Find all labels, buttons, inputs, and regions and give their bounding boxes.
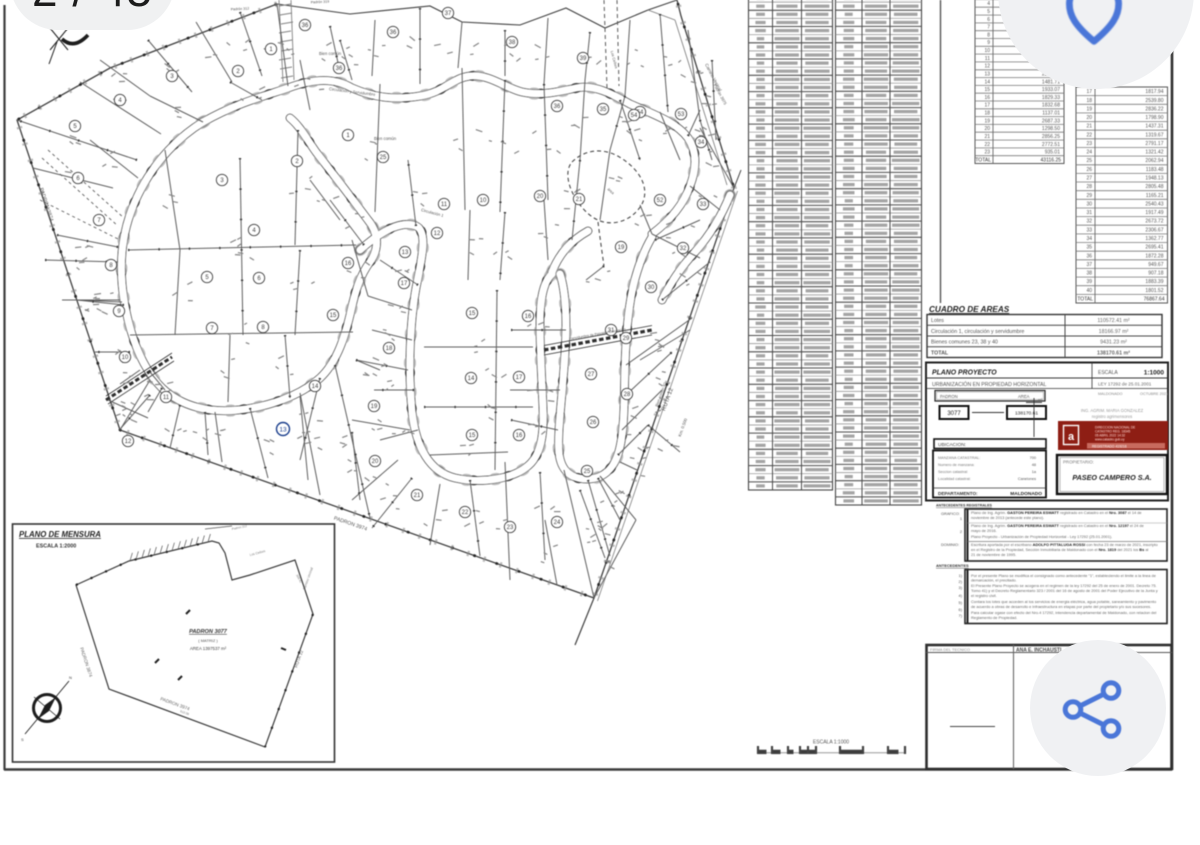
svg-text:20: 20	[1086, 115, 1092, 121]
svg-text:( MATRIZ ): ( MATRIZ )	[198, 638, 218, 643]
svg-text:7): 7)	[959, 613, 963, 618]
svg-text:MALDONADO: MALDONADO	[1098, 392, 1123, 396]
svg-text:2): 2)	[959, 579, 963, 584]
svg-text:26: 26	[590, 420, 597, 426]
svg-text:1362.77: 1362.77	[1145, 236, 1163, 242]
svg-text:30: 30	[648, 285, 655, 291]
svg-text:35: 35	[600, 107, 607, 113]
svg-text:Canelones: Canelones	[1018, 477, 1036, 481]
svg-text:5): 5)	[959, 600, 963, 605]
svg-text:28: 28	[1086, 184, 1092, 190]
svg-text:REGISTRADO 419216: REGISTRADO 419216	[1092, 444, 1127, 448]
svg-text:demarcación, el precitado.: demarcación, el precitado.	[971, 578, 1017, 583]
svg-text:2540.43: 2540.43	[1145, 201, 1163, 207]
svg-text:OCTUBRE 2021: OCTUBRE 2021	[1140, 392, 1168, 396]
svg-text:22: 22	[1086, 132, 1092, 138]
svg-text:www.catastro.gub.uy: www.catastro.gub.uy	[1095, 438, 1125, 442]
svg-text:S: S	[21, 737, 24, 742]
svg-text:17: 17	[984, 103, 990, 109]
svg-text:32: 32	[1086, 219, 1092, 225]
svg-text:7: 7	[987, 25, 990, 31]
svg-text:23: 23	[984, 150, 990, 156]
svg-text:DEPARTAMENTO:: DEPARTAMENTO:	[938, 491, 978, 496]
svg-text:29: 29	[1086, 193, 1092, 199]
svg-text:6: 6	[987, 17, 990, 23]
svg-text:24: 24	[554, 520, 561, 526]
svg-text:2687.33: 2687.33	[1042, 118, 1060, 124]
svg-text:1:1000: 1:1000	[1144, 370, 1165, 377]
svg-text:37: 37	[445, 11, 452, 17]
svg-text:21: 21	[984, 134, 990, 140]
svg-text:LEY 17292 de 25.01.2001: LEY 17292 de 25.01.2001	[1098, 382, 1152, 387]
svg-text:2695.41: 2695.41	[1145, 245, 1163, 251]
svg-text:22: 22	[984, 142, 990, 148]
svg-text:Numero de manzana:: Numero de manzana:	[938, 463, 975, 467]
svg-text:1137.01: 1137.01	[1042, 111, 1060, 117]
svg-text:1883.39: 1883.39	[1145, 279, 1163, 285]
svg-text:2673.72: 2673.72	[1145, 219, 1163, 225]
svg-text:TOTAL: TOTAL	[1077, 297, 1093, 303]
svg-text:AREA 1397537 m²: AREA 1397537 m²	[190, 646, 227, 651]
svg-text:36: 36	[1086, 253, 1092, 259]
svg-text:37: 37	[1086, 262, 1092, 268]
svg-text:15: 15	[330, 313, 337, 319]
svg-text:25: 25	[584, 469, 591, 475]
svg-text:TOTAL: TOTAL	[975, 157, 991, 163]
svg-text:mayo de 2016.: mayo de 2016.	[971, 528, 997, 533]
svg-text:24: 24	[1086, 150, 1092, 156]
svg-text:18: 18	[1086, 98, 1092, 104]
svg-text:700: 700	[1030, 456, 1036, 460]
svg-text:33: 33	[700, 202, 707, 208]
svg-text:138170.61 m²: 138170.61 m²	[1097, 350, 1130, 356]
svg-text:34: 34	[698, 140, 705, 146]
svg-text:2: 2	[960, 529, 962, 534]
svg-text:TOTAL: TOTAL	[931, 350, 949, 356]
svg-text:28: 28	[624, 392, 631, 398]
svg-text:ESCALA: ESCALA	[1098, 370, 1118, 376]
svg-text:48: 48	[1032, 463, 1036, 467]
svg-text:9431.23 m²: 9431.23 m²	[1100, 340, 1127, 346]
svg-text:1437.31: 1437.31	[1145, 124, 1163, 130]
svg-text:27: 27	[588, 372, 595, 378]
svg-text:2539.80: 2539.80	[1145, 98, 1163, 104]
svg-text:11: 11	[441, 202, 448, 208]
svg-text:29: 29	[623, 336, 630, 342]
svg-text:15: 15	[469, 433, 476, 439]
svg-text:13: 13	[402, 250, 409, 256]
svg-text:907.18: 907.18	[1148, 271, 1164, 277]
svg-text:MALDONADO: MALDONADO	[1010, 491, 1042, 497]
svg-text:Seccion catastral:: Seccion catastral:	[938, 470, 968, 474]
svg-text:PROPIETARIO:: PROPIETARIO:	[1063, 460, 1094, 465]
svg-text:1: 1	[960, 516, 962, 521]
svg-text:3077: 3077	[947, 411, 961, 417]
svg-text:Circulación 1, circulación y s: Circulación 1, circulación y servidumbre	[931, 329, 1024, 335]
svg-text:21: 21	[414, 493, 421, 499]
svg-text:23: 23	[507, 525, 514, 531]
svg-text:1801.52: 1801.52	[1145, 288, 1163, 294]
svg-text:UBICACION:: UBICACION:	[938, 442, 966, 448]
svg-text:23: 23	[1086, 141, 1092, 147]
svg-text:4): 4)	[959, 593, 963, 598]
svg-text:36: 36	[554, 104, 561, 110]
svg-text:26: 26	[1086, 167, 1092, 173]
svg-text:38: 38	[509, 40, 516, 46]
svg-text:Plano Proyecto - Urbanización: Plano Proyecto - Urbanización de Propied…	[971, 534, 1112, 539]
svg-text:URBANIZACIÓN EN PROPIEDAD HORI: URBANIZACIÓN EN PROPIEDAD HORIZONTAL	[932, 381, 1046, 388]
svg-text:27: 27	[1086, 176, 1092, 182]
svg-text:2836.22: 2836.22	[1145, 106, 1163, 112]
svg-text:ANTECEDENTES: ANTECEDENTES	[936, 563, 969, 568]
svg-text:PADRON 3874: PADRON 3874	[38, 187, 54, 222]
svg-text:12: 12	[434, 231, 441, 237]
svg-text:19: 19	[984, 118, 990, 124]
svg-text:14: 14	[312, 384, 319, 390]
svg-text:20: 20	[372, 459, 379, 465]
svg-text:CUADRO DE AREAS: CUADRO DE AREAS	[929, 305, 1010, 314]
svg-text:17: 17	[401, 281, 408, 287]
svg-text:Tomo 41) y el Decreto Reglamen: Tomo 41) y el Decreto Reglamentario 323 …	[971, 588, 1158, 593]
svg-text:Plano de Ing. Agrim. GASTON PE: Plano de Ing. Agrim. GASTON PEREIRA ESWA…	[971, 523, 1144, 528]
svg-text:MANZANA CATASTRAL:: MANZANA CATASTRAL:	[938, 456, 980, 460]
svg-text:25: 25	[1086, 158, 1092, 164]
svg-text:35: 35	[1086, 245, 1092, 251]
svg-text:AREA: AREA	[1018, 394, 1030, 399]
svg-text:1183.48: 1183.48	[1146, 167, 1164, 173]
svg-text:18: 18	[386, 346, 393, 352]
svg-text:PADRON: PADRON	[940, 394, 958, 399]
svg-text:11: 11	[985, 56, 990, 62]
svg-text:20: 20	[537, 194, 544, 200]
svg-text:PASEO CAMPERO S.A.: PASEO CAMPERO S.A.	[1072, 473, 1151, 482]
svg-text:a: a	[1068, 431, 1075, 443]
svg-text:30: 30	[1086, 201, 1092, 207]
svg-text:Los Ceibos: Los Ceibos	[610, 51, 619, 70]
svg-text:ANTECEDENTES REGISTRALES: ANTECEDENTES REGISTRALES	[936, 504, 993, 508]
svg-text:138170.61: 138170.61	[1015, 411, 1038, 417]
svg-text:21: 21	[1086, 124, 1092, 130]
svg-text:1165.21: 1165.21	[1146, 193, 1164, 199]
svg-text:PADRON 3974: PADRON 3974	[333, 516, 368, 533]
svg-text:DOMINIO:: DOMINIO:	[941, 542, 959, 547]
svg-text:39: 39	[1086, 279, 1092, 285]
svg-text:1872.28: 1872.28	[1145, 253, 1163, 259]
svg-text:54: 54	[631, 113, 638, 119]
svg-text:40: 40	[1086, 288, 1092, 294]
svg-text:12: 12	[125, 439, 132, 445]
svg-text:4: 4	[987, 1, 990, 7]
svg-text:34: 34	[1086, 236, 1092, 242]
svg-text:38: 38	[1086, 271, 1092, 277]
svg-text:1817.94: 1817.94	[1145, 89, 1163, 95]
svg-text:19: 19	[371, 404, 378, 410]
svg-text:19: 19	[618, 245, 625, 251]
svg-text:18: 18	[984, 111, 990, 117]
svg-text:53: 53	[678, 112, 685, 118]
svg-text:1): 1)	[959, 573, 963, 578]
svg-text:16: 16	[984, 95, 990, 101]
svg-text:2805.48: 2805.48	[1145, 184, 1163, 190]
svg-text:1917.49: 1917.49	[1145, 210, 1163, 216]
svg-text:ANA E. INCHAUSTI: ANA E. INCHAUSTI	[1016, 648, 1062, 654]
svg-text:11: 11	[163, 395, 170, 401]
svg-text:Padrón 319: Padrón 319	[311, 0, 330, 4]
svg-text:20: 20	[984, 126, 990, 132]
svg-text:el registro civil.: el registro civil.	[971, 593, 997, 598]
svg-text:19: 19	[1086, 106, 1092, 112]
svg-text:1829.33: 1829.33	[1042, 95, 1060, 101]
svg-text:ESCALA 1:2000: ESCALA 1:2000	[36, 544, 76, 550]
svg-text:10: 10	[984, 48, 990, 54]
svg-text:GRAFICO:: GRAFICO:	[941, 511, 960, 516]
svg-text:33: 33	[1086, 227, 1092, 233]
svg-text:PLANO PROYECTO: PLANO PROYECTO	[932, 370, 997, 377]
svg-text:Bien común: Bien común	[374, 136, 397, 141]
svg-text:Km. 0.500: Km. 0.500	[677, 417, 688, 437]
svg-text:2791.17: 2791.17	[1145, 141, 1163, 147]
svg-text:Bienes comunes 23, 38 y 40: Bienes comunes 23, 38 y 40	[931, 340, 998, 346]
svg-text:110572.41 m²: 110572.41 m²	[1097, 318, 1130, 324]
svg-text:2306.67: 2306.67	[1145, 227, 1163, 233]
svg-text:16: 16	[525, 314, 532, 320]
svg-text:de acuerdo a obras de desarrol: de acuerdo a obras de desarrollo e infra…	[971, 604, 1151, 609]
svg-text:31: 31	[1086, 210, 1092, 216]
svg-text:14: 14	[984, 79, 990, 85]
svg-text:Servidumbre de Paisaje y Circu: Servidumbre de Paisaje y Circulación	[570, 327, 626, 341]
svg-text:12: 12	[984, 64, 990, 70]
svg-text:36: 36	[302, 23, 309, 29]
svg-text:1298.50: 1298.50	[1042, 126, 1060, 132]
svg-text:5: 5	[987, 9, 990, 15]
svg-text:935.01: 935.01	[1045, 150, 1061, 156]
svg-text:13: 13	[279, 427, 287, 434]
svg-text:ESCALA 1:1000: ESCALA 1:1000	[813, 740, 849, 746]
svg-text:32: 32	[680, 246, 687, 252]
svg-text:9: 9	[987, 40, 990, 46]
svg-text:15: 15	[984, 87, 990, 93]
svg-text:16: 16	[345, 261, 352, 267]
svg-text:ING. AGRIM. MARIA GONZALEZ: ING. AGRIM. MARIA GONZALEZ	[1081, 408, 1144, 413]
svg-text:Padrón 312: Padrón 312	[231, 7, 250, 12]
svg-text:Reglamento de Propiedad.: Reglamento de Propiedad.	[971, 615, 1017, 620]
svg-text:76867.64: 76867.64	[1144, 297, 1165, 303]
svg-text:Bien común: Bien común	[319, 51, 342, 56]
svg-text:1948.13: 1948.13	[1145, 176, 1163, 182]
svg-text:18166.97 m²: 18166.97 m²	[1099, 329, 1129, 335]
svg-text:PADRON 3077: PADRON 3077	[189, 629, 228, 635]
svg-text:39: 39	[580, 56, 587, 62]
svg-text:1933.07: 1933.07	[1042, 87, 1060, 93]
svg-text:1321.42: 1321.42	[1145, 150, 1163, 156]
svg-text:1832.68: 1832.68	[1042, 103, 1060, 109]
svg-text:22: 22	[462, 510, 469, 516]
svg-text:21: 21	[576, 197, 583, 203]
svg-text:área: área	[606, 187, 615, 196]
svg-text:36: 36	[390, 30, 397, 36]
svg-text:registro agrimensores: registro agrimensores	[1092, 414, 1133, 419]
svg-text:15: 15	[469, 311, 476, 317]
svg-text:6): 6)	[959, 607, 963, 612]
svg-text:FIRMA DEL TECNICO: FIRMA DEL TECNICO	[930, 647, 970, 652]
svg-text:17: 17	[1086, 89, 1092, 95]
svg-text:10: 10	[480, 198, 487, 204]
svg-text:43116.25: 43116.25	[1041, 157, 1062, 163]
svg-text:2772.51: 2772.51	[1042, 142, 1060, 148]
svg-text:1a: 1a	[1032, 470, 1037, 474]
svg-text:Localidad catastral:: Localidad catastral:	[938, 477, 971, 481]
svg-text:2062.94: 2062.94	[1145, 158, 1163, 164]
svg-text:8: 8	[987, 32, 990, 38]
svg-text:16: 16	[516, 433, 523, 439]
svg-text:Lotes: Lotes	[931, 318, 944, 324]
svg-text:N: N	[69, 675, 72, 680]
svg-text:1319.67: 1319.67	[1145, 132, 1163, 138]
svg-text:13: 13	[984, 72, 990, 78]
svg-text:1798.90: 1798.90	[1145, 115, 1163, 121]
svg-text:52: 52	[657, 198, 664, 204]
svg-text:36: 36	[336, 66, 343, 72]
svg-text:noviembre de 2013 (antecede es: noviembre de 2013 (antecede este plano).	[971, 515, 1044, 520]
svg-text:21 de noviembre de 1995.: 21 de noviembre de 1995.	[971, 552, 1016, 557]
svg-text:10: 10	[122, 355, 129, 361]
svg-text:17: 17	[516, 375, 523, 381]
svg-text:3): 3)	[959, 585, 963, 590]
svg-text:25: 25	[380, 155, 387, 161]
svg-text:949.67: 949.67	[1148, 262, 1164, 268]
svg-text:2856.25: 2856.25	[1042, 134, 1060, 140]
svg-text:PLANO DE MENSURA: PLANO DE MENSURA	[19, 530, 101, 539]
svg-text:14: 14	[468, 376, 475, 382]
